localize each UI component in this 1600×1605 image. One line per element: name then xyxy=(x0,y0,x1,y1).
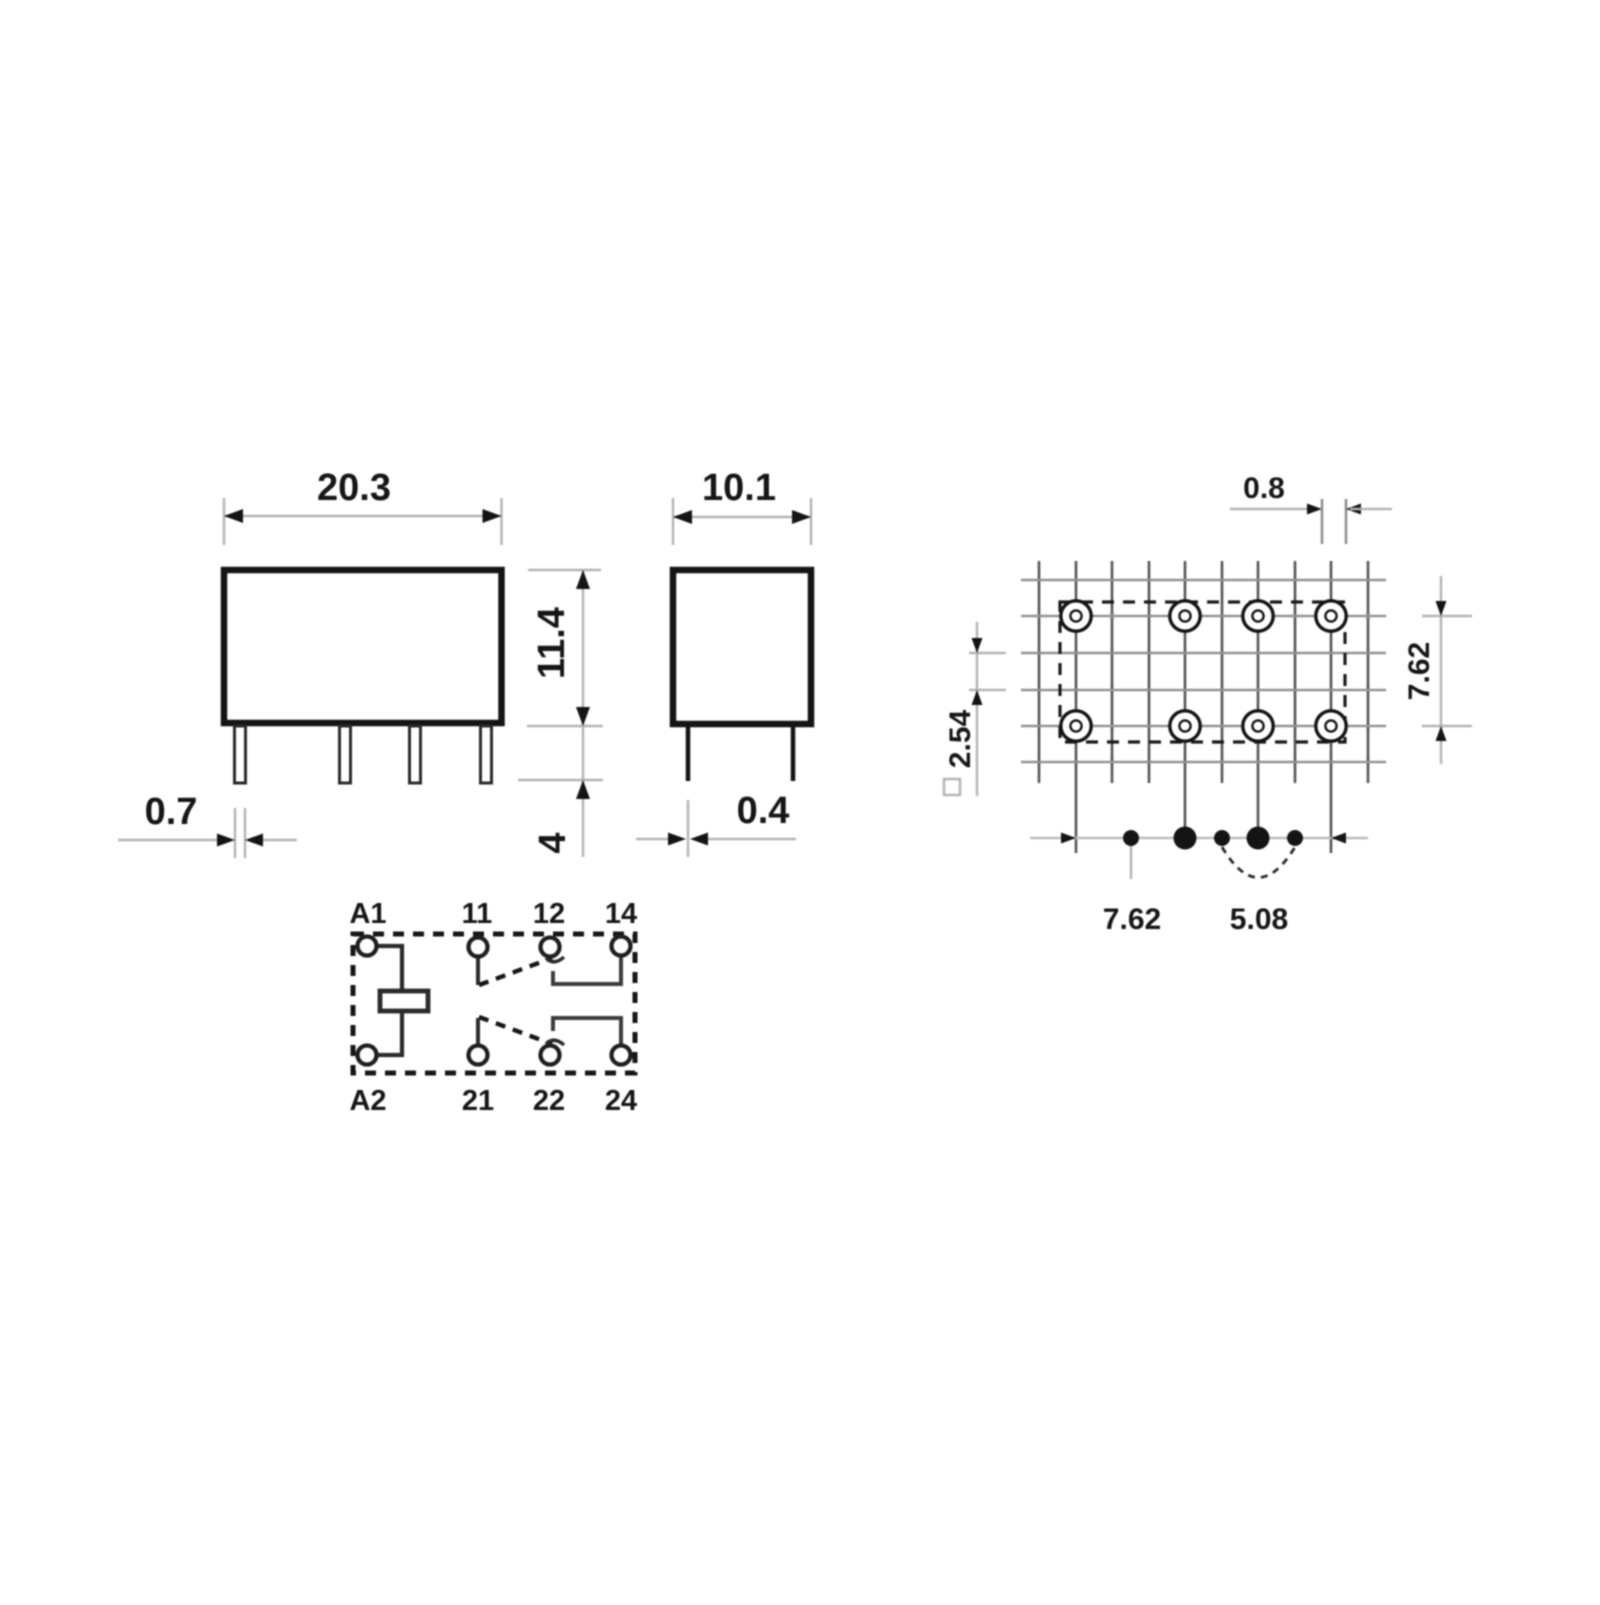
svg-text:5.08: 5.08 xyxy=(1230,903,1288,936)
svg-text:10.1: 10.1 xyxy=(702,467,776,509)
svg-text:24: 24 xyxy=(605,1085,637,1117)
svg-text:20.3: 20.3 xyxy=(317,467,391,509)
svg-text:A2: A2 xyxy=(349,1085,386,1117)
svg-text:11: 11 xyxy=(462,898,493,930)
svg-text:0.8: 0.8 xyxy=(1243,472,1285,505)
svg-text:0.4: 0.4 xyxy=(737,790,790,832)
svg-text:A1: A1 xyxy=(349,898,386,930)
svg-text:12: 12 xyxy=(533,898,565,930)
svg-text:7.62: 7.62 xyxy=(1103,903,1161,936)
svg-text:11.4: 11.4 xyxy=(531,607,573,679)
svg-text:21: 21 xyxy=(462,1085,494,1117)
svg-text:4: 4 xyxy=(532,832,574,853)
svg-text:2.54: 2.54 xyxy=(944,709,977,768)
svg-text:7.62: 7.62 xyxy=(1403,642,1436,700)
svg-text:14: 14 xyxy=(605,898,637,930)
svg-text:0.7: 0.7 xyxy=(145,791,198,833)
svg-text:22: 22 xyxy=(533,1085,565,1117)
